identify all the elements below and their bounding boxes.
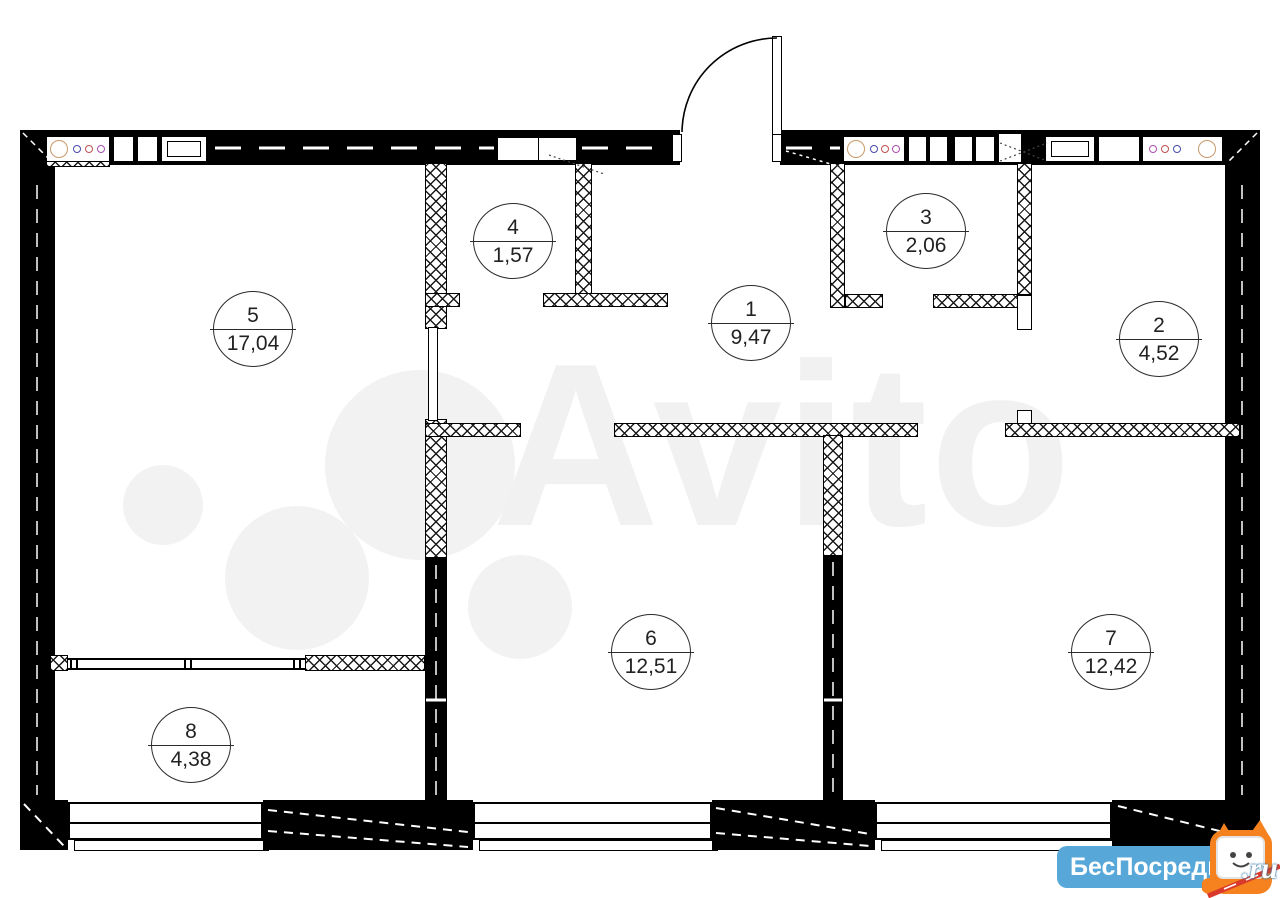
hatched-wall — [1005, 423, 1240, 437]
hatched-wall — [425, 423, 521, 437]
avito-watermark: Avito — [492, 330, 1073, 562]
kitchen-cabinet-icon — [1098, 136, 1140, 162]
duct-shaft — [428, 327, 438, 421]
hatched-wall — [50, 655, 68, 671]
burner-large-icon — [847, 140, 865, 158]
avito-logo-circle — [225, 506, 369, 650]
room-label-3: 3 2,06 — [886, 193, 966, 269]
wall-opening — [998, 134, 1022, 162]
hatched-wall — [305, 655, 425, 671]
door-jamb — [672, 134, 682, 162]
hatched-wall — [575, 163, 592, 295]
room-area: 4,52 — [1139, 343, 1180, 364]
glazing-mullion — [293, 658, 301, 670]
label-divider — [470, 241, 556, 242]
room-area: 12,42 — [1085, 656, 1138, 677]
wall-pier — [263, 800, 473, 850]
room-number: 5 — [247, 305, 259, 326]
wall-segment — [1017, 410, 1032, 424]
window-bottom — [473, 802, 712, 840]
room-number: 1 — [745, 299, 757, 320]
burner-small-icon — [85, 145, 93, 153]
besposrednika-tld: .ru — [1242, 852, 1278, 886]
room-number: 2 — [1153, 315, 1165, 336]
hatched-wall — [425, 419, 447, 559]
stove-icon — [843, 136, 905, 162]
window-sill — [479, 840, 718, 851]
burner-small-icon — [892, 145, 900, 153]
label-divider — [148, 745, 234, 746]
hatched-wall — [543, 293, 668, 307]
wall-segment — [1017, 295, 1032, 330]
hatched-wall — [830, 163, 845, 308]
room-label-1: 1 9,47 — [711, 285, 791, 361]
door-swing-icon — [682, 38, 777, 132]
wall-corner — [20, 800, 68, 850]
hatched-wall — [845, 294, 883, 308]
label-divider — [1116, 339, 1202, 340]
avito-logo-circle — [123, 465, 203, 545]
label-divider — [1068, 652, 1154, 653]
kitchen-cabinet-icon — [137, 136, 158, 162]
window-sill — [74, 840, 269, 851]
wall-pier — [712, 800, 875, 850]
stove-icon — [1142, 136, 1223, 162]
label-divider — [708, 323, 794, 324]
glazing-mullion — [70, 658, 78, 670]
label-divider — [883, 231, 969, 232]
kitchen-cabinet-icon — [908, 136, 927, 162]
kitchen-cabinet-icon — [954, 136, 973, 162]
room-area: 1,57 — [493, 245, 534, 266]
kitchen-cabinet-icon — [929, 136, 948, 162]
room-area: 4,38 — [171, 749, 212, 770]
room-label-6: 6 12,51 — [611, 614, 691, 690]
burner-small-icon — [1161, 145, 1169, 153]
kitchen-cabinet-icon — [113, 136, 134, 162]
burner-small-icon — [73, 145, 81, 153]
hatched-wall — [933, 294, 1019, 308]
wall-left — [20, 130, 55, 845]
room-label-4: 4 1,57 — [473, 203, 553, 279]
room-label-5: 5 17,04 — [213, 291, 293, 367]
room-number: 6 — [645, 628, 657, 649]
room-area: 12,51 — [625, 656, 678, 677]
hatched-wall — [823, 435, 843, 557]
window-bottom — [68, 802, 263, 840]
loggia-glazing — [68, 658, 305, 670]
label-divider — [608, 652, 694, 653]
window-top — [497, 137, 577, 161]
label-divider — [210, 329, 296, 330]
wall-right — [1225, 130, 1260, 845]
burner-large-icon — [50, 140, 68, 158]
burner-small-icon — [1149, 145, 1157, 153]
room-area: 9,47 — [731, 327, 772, 348]
room-label-8: 8 4,38 — [151, 707, 231, 783]
room-number: 4 — [507, 217, 519, 238]
room-number: 3 — [920, 207, 932, 228]
hatched-wall — [1017, 163, 1032, 295]
room-label-7: 7 12,42 — [1071, 614, 1151, 690]
door-jamb — [772, 134, 782, 162]
kitchen-cabinet-icon — [975, 136, 995, 162]
room-area: 17,04 — [227, 333, 280, 354]
kitchen-cabinet-icon — [161, 136, 207, 162]
room-label-2: 2 4,52 — [1119, 301, 1199, 377]
kitchen-cabinet-icon — [1045, 136, 1095, 162]
stove-icon — [46, 136, 110, 162]
burner-small-icon — [870, 145, 878, 153]
avito-logo-circle — [325, 370, 515, 560]
burner-small-icon — [1173, 145, 1181, 153]
room-area: 2,06 — [906, 235, 947, 256]
burner-small-icon — [881, 145, 889, 153]
wall-segment — [823, 555, 843, 803]
window-bottom — [875, 802, 1112, 840]
hatched-wall — [614, 423, 918, 437]
entrance-door-leaf — [772, 36, 782, 135]
glazing-mullion — [184, 658, 192, 670]
burner-large-icon — [1198, 140, 1216, 158]
floor-plan: Avito — [0, 0, 1280, 898]
wall-segment — [425, 557, 447, 803]
room-number: 8 — [185, 721, 197, 742]
burner-small-icon — [97, 145, 105, 153]
room-number: 7 — [1105, 628, 1117, 649]
hatched-wall — [425, 293, 460, 307]
